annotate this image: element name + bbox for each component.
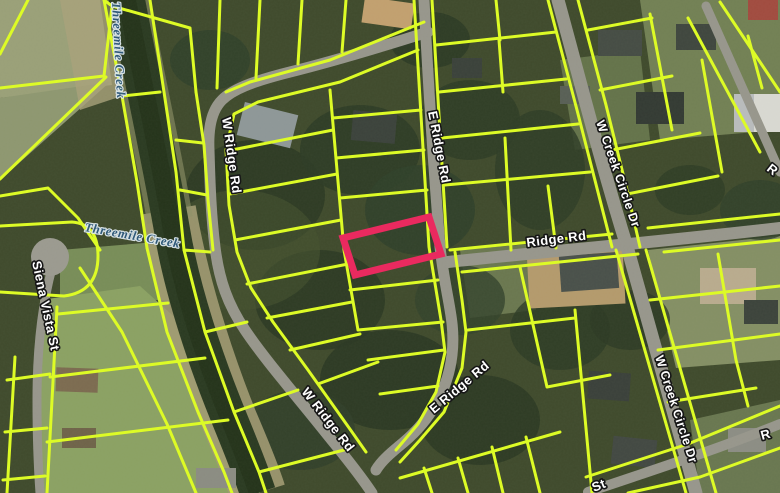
map-svg: Threemile Creek Threemile Creek W Ridge … — [0, 0, 780, 493]
map-canvas[interactable]: Threemile Creek Threemile Creek W Ridge … — [0, 0, 780, 493]
